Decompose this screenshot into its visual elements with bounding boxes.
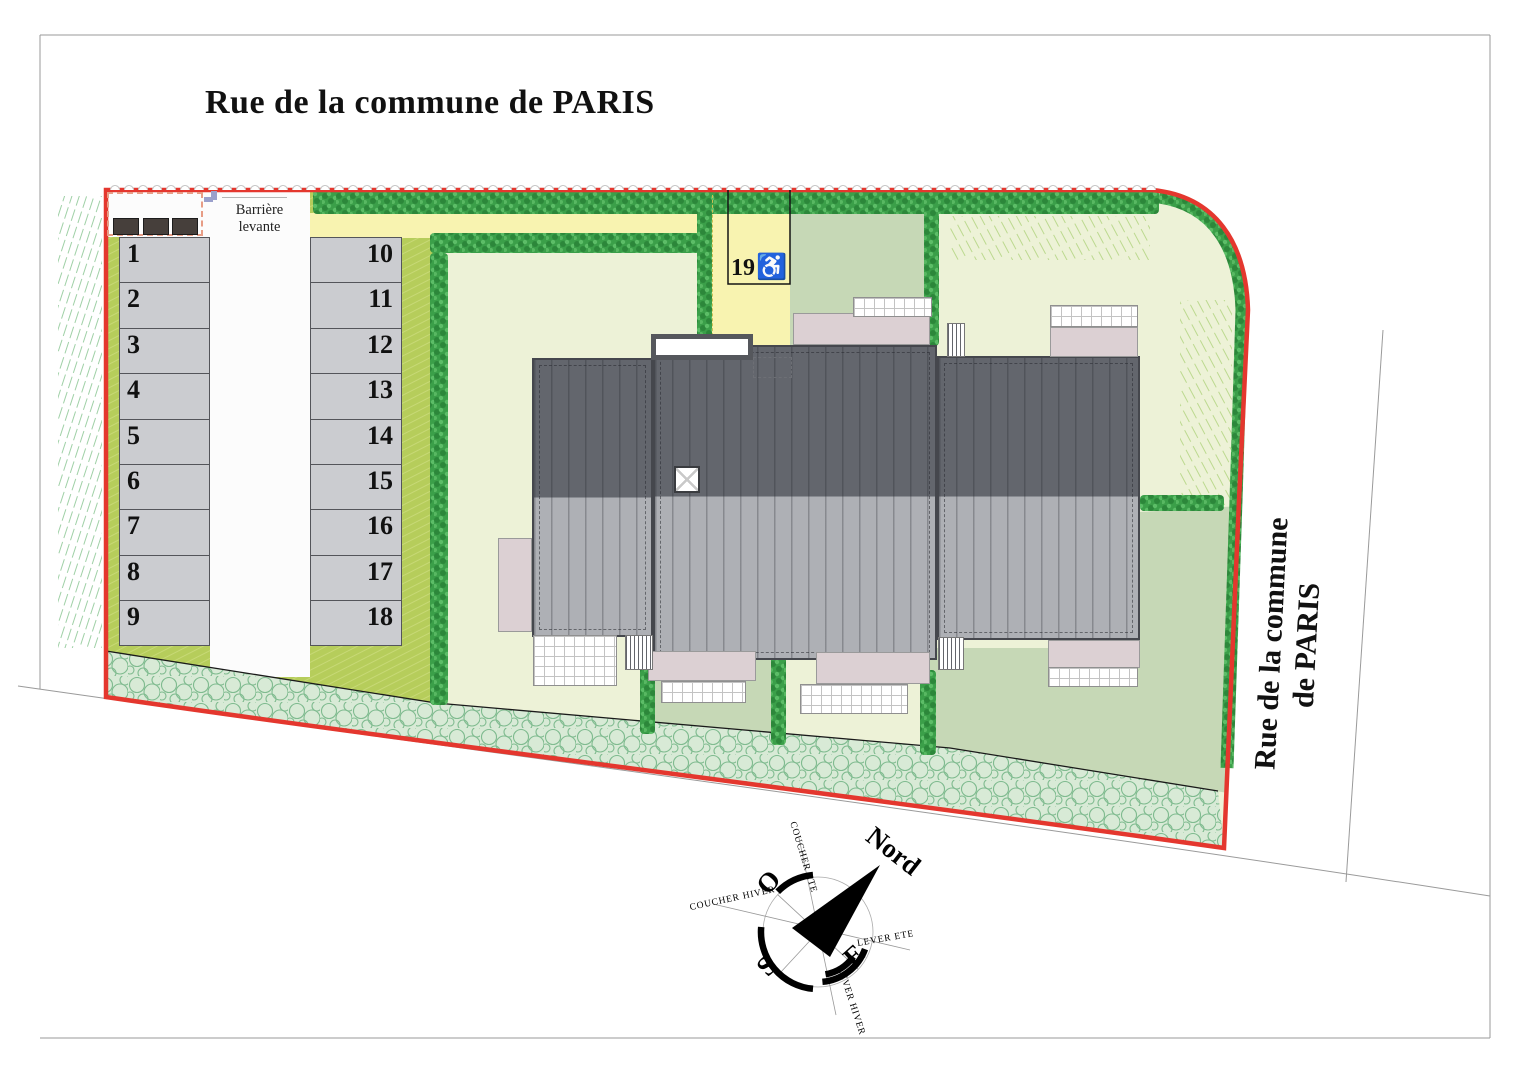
terrace-south-b (800, 684, 908, 714)
parking-stall-5: 5 (119, 419, 210, 465)
terrace-north-a (853, 297, 932, 317)
parking-stall-11: 11 (310, 282, 402, 329)
parking-stall-9: 9 (119, 600, 210, 646)
parking-stall-15: 15 (310, 464, 402, 510)
terrace-south-c (1048, 667, 1138, 687)
parking-stall-12: 12 (310, 328, 402, 374)
parking-stall-14: 14 (310, 419, 402, 465)
patio-south-a (648, 651, 756, 681)
parking-stall-10: 10 (310, 237, 402, 283)
steps-right-wing-south (938, 637, 964, 670)
barrier-arm-line (222, 197, 287, 198)
parking-stall-17: 17 (310, 555, 402, 601)
stall-19-number: 19 (731, 256, 755, 280)
site-plan-sheet: Rue de la commune de PARIS Rue de la com… (0, 0, 1528, 1080)
parking-aisle (210, 237, 310, 677)
parking-stall-4: 4 (119, 373, 210, 420)
patio-north-a (793, 313, 930, 345)
street-title-top: Rue de la commune de PARIS (205, 84, 655, 122)
building-center-roof (653, 345, 937, 660)
parking-stall-1: 1 (119, 237, 210, 283)
patio-north-b (1050, 327, 1138, 357)
street-edge-line (1346, 330, 1383, 882)
building-right-wing-roof (937, 356, 1140, 640)
skylight (674, 466, 700, 493)
bin-storage-bay (107, 192, 203, 236)
parking-stall-18: 18 (310, 600, 402, 646)
building-left-wing-roof (532, 358, 653, 637)
parking-stall-13: 13 (310, 373, 402, 420)
barrier-label: Barrière levante (212, 202, 307, 235)
bin (143, 218, 169, 235)
roadside-verge-hatch (58, 196, 102, 648)
parking-stall-16: 16 (310, 509, 402, 556)
terrace-left-wing (533, 635, 617, 686)
parking-stall-19-accessible: 19 ♿ (728, 190, 790, 284)
bin (172, 218, 198, 235)
parking-stall-8: 8 (119, 555, 210, 601)
patio-west (498, 538, 532, 632)
winter-sunrise-label: LEVER HIVER (835, 966, 866, 1036)
patio-south-c (1048, 640, 1140, 668)
parking-stall-2: 2 (119, 282, 210, 329)
parking-stall-6: 6 (119, 464, 210, 510)
patio-south-b (816, 652, 930, 684)
compass-rose: Nord O S E COUCHER ETE COUCHER HIVER LEV… (660, 815, 960, 1055)
summer-sunrise-label: LEVER ETE (856, 929, 914, 949)
bin (113, 218, 139, 235)
terrace-north-b (1050, 305, 1138, 327)
entrance-canopy (651, 334, 753, 360)
steps-left-wing (625, 635, 653, 670)
roof-dashed-detail (753, 357, 792, 378)
wheelchair-icon: ♿ (756, 255, 787, 280)
drive-edge-dash (712, 195, 713, 341)
parking-stall-7: 7 (119, 509, 210, 556)
steps-right-wing-north (947, 323, 965, 357)
parking-stall-3: 3 (119, 328, 210, 374)
terrace-south-a (661, 681, 746, 703)
boundary-scallop-edge (108, 181, 1160, 190)
